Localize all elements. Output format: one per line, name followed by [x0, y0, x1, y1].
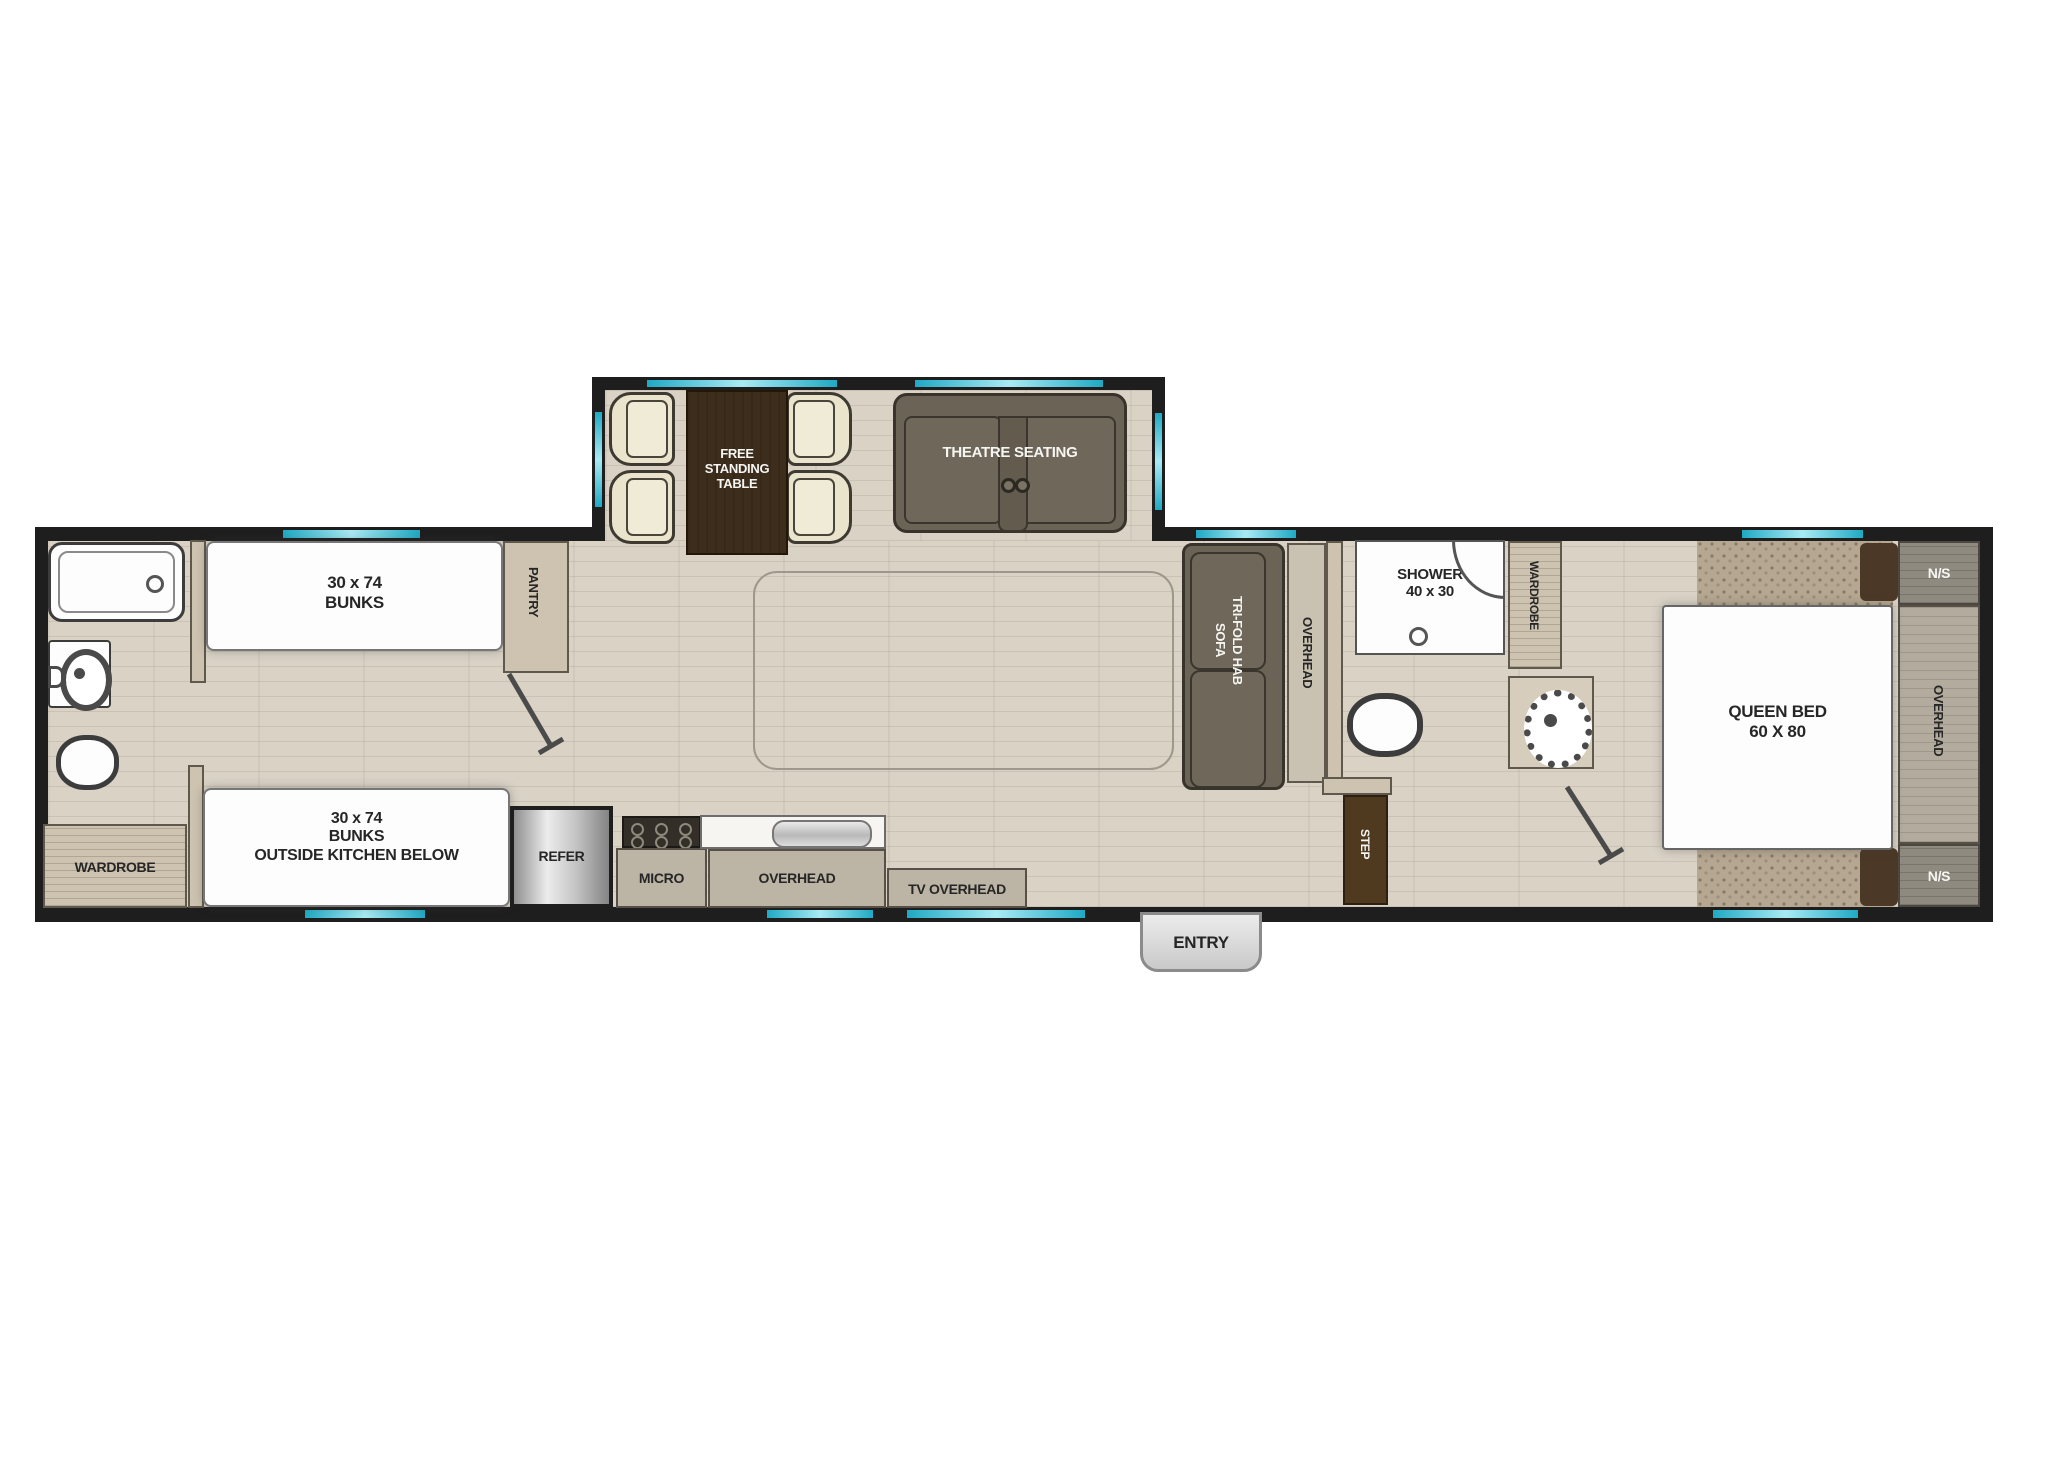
- shower-size: 40 x 30: [1406, 583, 1454, 600]
- bath-wall-divider: [190, 540, 206, 683]
- ns-bottom-label: N/S: [1900, 868, 1978, 884]
- window: [767, 910, 873, 918]
- bath-wall-divider-2: [188, 765, 204, 908]
- shower-drain: [1409, 627, 1428, 646]
- free-standing-table: FREE STANDING TABLE: [686, 390, 788, 555]
- mid-wall-cap: [1322, 777, 1392, 795]
- wardrobe-left-label: WARDROBE: [45, 859, 185, 875]
- kitchen-counter: [700, 815, 886, 849]
- cupholder: [1001, 478, 1016, 493]
- bathtub: [48, 542, 185, 622]
- refer-label: REFER: [514, 848, 609, 864]
- bunk-bottom-label: BUNKS: [329, 828, 384, 845]
- table-label-3: TABLE: [717, 476, 758, 491]
- window: [1742, 530, 1863, 538]
- tv-overhead-label: TV OVERHEAD: [889, 881, 1025, 897]
- window: [1713, 910, 1858, 918]
- floor-plan: WARDROBE 30 x 74 BUNKS PANTRY 30 x 74 BU…: [0, 0, 2048, 1463]
- sofa-overhead-label: OVERHEAD: [1299, 617, 1314, 688]
- pantry-label: PANTRY: [525, 567, 540, 617]
- window: [647, 380, 837, 387]
- window: [1196, 530, 1296, 538]
- micro-label: MICRO: [618, 870, 705, 886]
- island-outline: [753, 571, 1174, 770]
- window: [595, 412, 602, 507]
- kitchen-sink: [772, 820, 872, 848]
- entry-label: ENTRY: [1143, 933, 1259, 953]
- wardrobe-bedroom: WARDROBE: [1508, 541, 1562, 669]
- dinette-chair: [786, 470, 852, 544]
- cupholder: [1015, 478, 1030, 493]
- sofa-label-2: SOFA: [1213, 623, 1228, 657]
- sofa-label-1: TRI-FOLD HAB: [1230, 596, 1245, 685]
- bunk-top-size: 30 x 74: [327, 573, 382, 592]
- bed-corner-chest: [1860, 543, 1898, 601]
- step: STEP: [1343, 795, 1388, 905]
- toilet: [56, 735, 119, 790]
- bath-sink: [48, 640, 111, 708]
- bed-corner-chest: [1860, 848, 1898, 906]
- table-label-1: FREE: [720, 446, 753, 461]
- dinette-chair: [609, 392, 675, 466]
- vanity-sink: [1508, 676, 1594, 769]
- tv-overhead-cabinet: TV OVERHEAD: [887, 868, 1027, 908]
- toilet: [1347, 693, 1423, 757]
- bunk-bottom: 30 x 74 BUNKS OUTSIDE KITCHEN BELOW: [203, 788, 510, 907]
- kitchen-overhead-cabinet: OVERHEAD: [708, 849, 886, 908]
- shower-label: SHOWER: [1397, 566, 1463, 583]
- ns-top-label: N/S: [1900, 565, 1978, 581]
- queen-bed-label: QUEEN BED: [1728, 702, 1826, 721]
- tri-fold-sofa: TRI-FOLD HAB SOFA: [1182, 543, 1285, 790]
- bedroom-overhead-cabinet: OVERHEAD: [1898, 605, 1980, 844]
- shower: SHOWER 40 x 30: [1355, 540, 1505, 655]
- window: [915, 380, 1103, 387]
- step-label: STEP: [1357, 829, 1371, 859]
- table-label-2: STANDING: [705, 461, 770, 476]
- wardrobe-bedroom-label: WARDROBE: [1526, 561, 1540, 630]
- nightstand-bottom: N/S: [1898, 844, 1980, 907]
- window: [1155, 413, 1162, 510]
- bunk-bottom-size: 30 x 74: [331, 810, 382, 827]
- bunk-top: 30 x 74 BUNKS: [206, 541, 503, 651]
- nightstand-top: N/S: [1898, 541, 1980, 605]
- queen-bed-size: 60 X 80: [1749, 722, 1806, 741]
- bunk-top-label: BUNKS: [325, 593, 384, 612]
- pantry: PANTRY: [503, 541, 569, 673]
- dinette-chair: [786, 392, 852, 466]
- tub-drain: [146, 575, 164, 593]
- theatre-label: THEATRE SEATING: [896, 444, 1124, 461]
- dinette-chair: [609, 470, 675, 544]
- bunk-bottom-note: OUTSIDE KITCHEN BELOW: [254, 847, 458, 864]
- microwave-cabinet: MICRO: [616, 848, 707, 908]
- sofa-overhead-cabinet: OVERHEAD: [1287, 543, 1326, 783]
- range-cooktop: [622, 816, 701, 848]
- bedroom-overhead-label: OVERHEAD: [1930, 685, 1945, 756]
- wardrobe-left: WARDROBE: [43, 824, 187, 908]
- mid-wall: [1326, 541, 1343, 782]
- window: [907, 910, 1085, 918]
- queen-bed: QUEEN BED 60 X 80: [1662, 605, 1893, 850]
- entry-step: ENTRY: [1140, 912, 1262, 972]
- wall-right: [1980, 527, 1993, 922]
- window: [305, 910, 425, 918]
- theatre-seating: THEATRE SEATING: [893, 393, 1127, 533]
- window: [283, 530, 420, 538]
- kitchen-overhead-label: OVERHEAD: [710, 870, 884, 886]
- refrigerator: REFER: [510, 806, 613, 908]
